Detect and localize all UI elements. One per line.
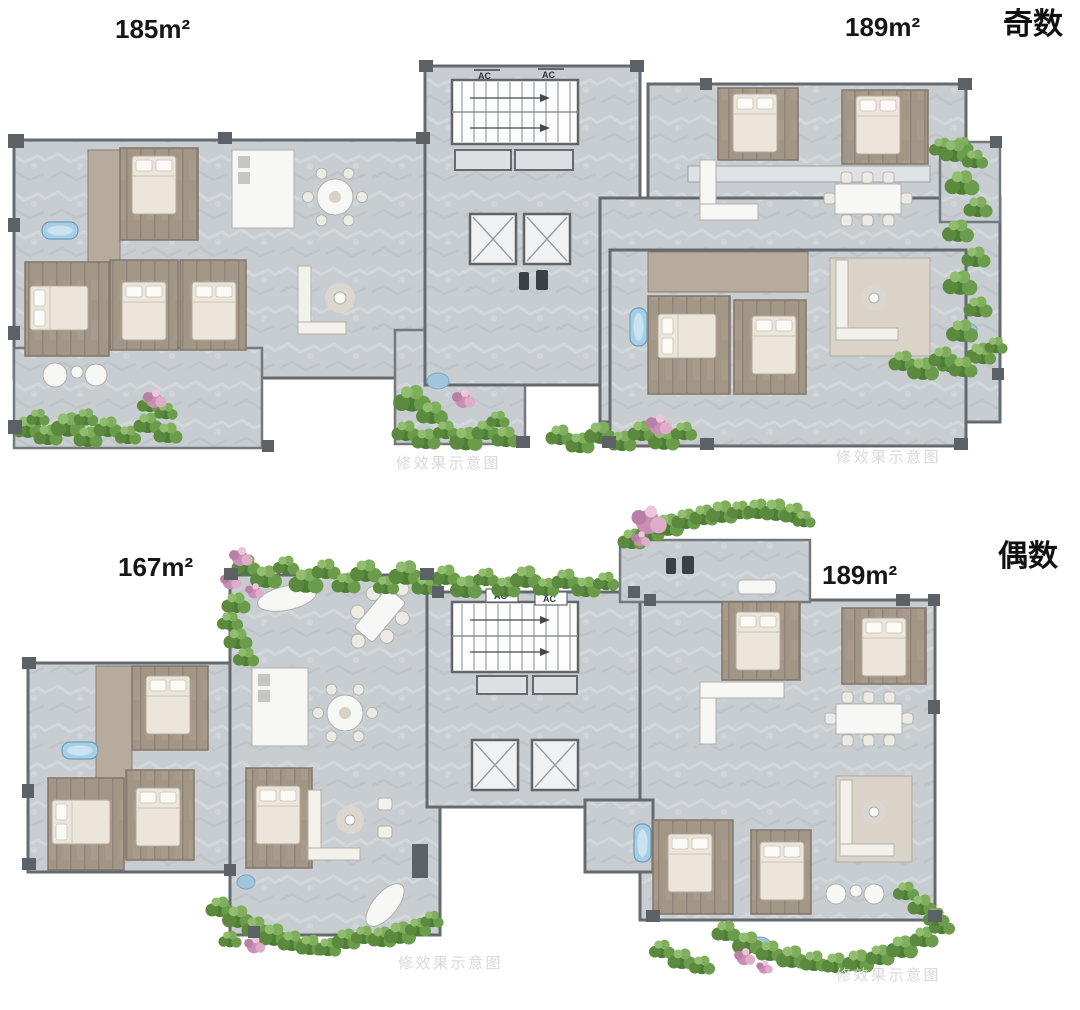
area-label: 189m² [845,12,920,42]
bed-icon [122,282,166,340]
pond-icon [427,373,449,389]
bed-icon [52,800,110,844]
area-label: 167m² [118,552,193,582]
area-label: 185m² [115,14,190,44]
pond-icon [237,875,255,889]
ac-label: AC [478,71,491,81]
watermark-text: 修效果示意图 [398,954,503,972]
bed-icon [668,834,712,892]
elevator-icon [532,740,578,790]
bed-icon [30,286,88,330]
stool-icon [666,558,676,574]
upper-floor-plan: AC AC [8,8,1064,472]
floor-plan-sheet: AC AC [0,0,1080,1010]
bed-icon [760,842,804,900]
staircase-icon [452,602,578,672]
elevator-icon [472,740,518,790]
bed-icon [256,786,300,844]
bathtub-icon [634,824,651,862]
elevator-icon [470,214,516,264]
bed-icon [752,316,796,374]
bench-icon [738,580,776,594]
bathtub-icon [62,742,98,759]
bed-icon [146,676,190,734]
kitchen-counter [700,682,784,698]
stool-icon [519,272,529,290]
bed-icon [192,282,236,340]
bed-icon [733,94,777,152]
bed-icon [136,788,180,846]
bathtub-icon [630,308,647,346]
area-label: 189m² [822,560,897,590]
bed-icon [862,618,906,676]
bathtub-icon [42,222,78,239]
watermark-text: 修效果示意图 [836,448,941,466]
watermark-text: 修效果示意图 [396,454,501,472]
bed-icon [658,314,716,358]
bed-icon [132,156,176,214]
elevator-icon [524,214,570,264]
ac-label: AC [542,70,555,80]
parity-label: 偶数 [998,540,1059,573]
floor-plan-canvas: AC AC [0,0,1080,1010]
parity-label: 奇数 [1003,8,1064,41]
bed-icon [856,96,900,154]
stool-icon [682,556,694,574]
bed-icon [736,612,780,670]
lower-floor-plan: AC AC [22,498,1059,984]
stool-icon [536,270,548,290]
watermark-text: 修效果示意图 [836,966,941,984]
